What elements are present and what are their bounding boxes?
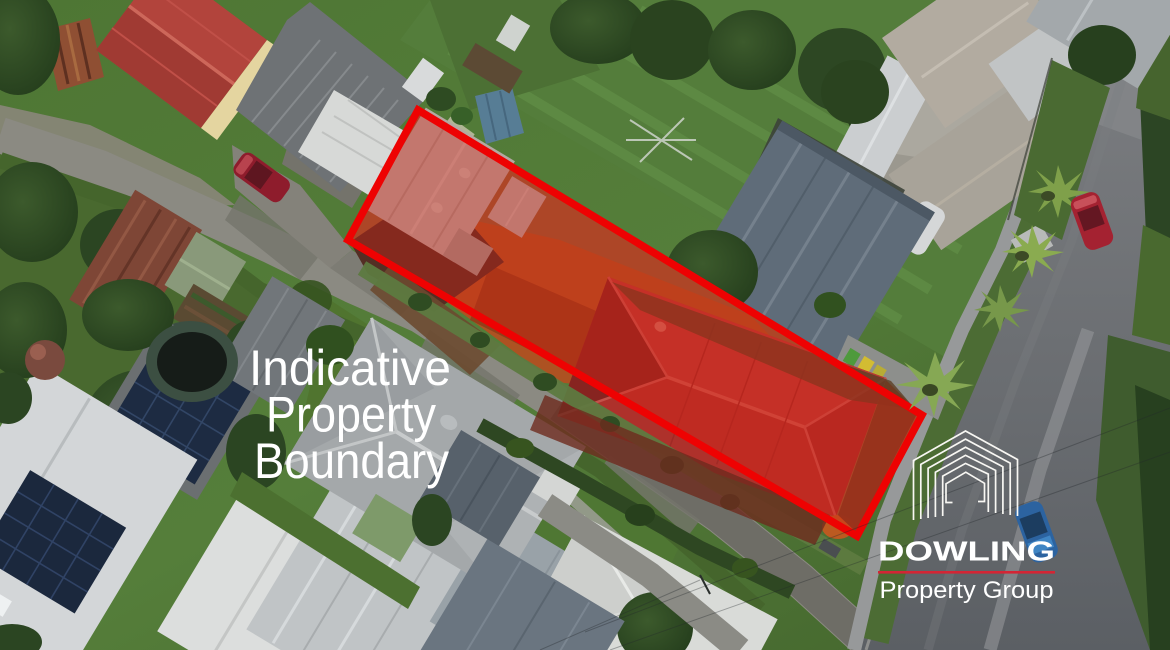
svg-text:DOWLING: DOWLING — [878, 536, 1055, 567]
svg-text:Boundary: Boundary — [254, 433, 449, 489]
svg-text:Property Group: Property Group — [880, 577, 1054, 604]
